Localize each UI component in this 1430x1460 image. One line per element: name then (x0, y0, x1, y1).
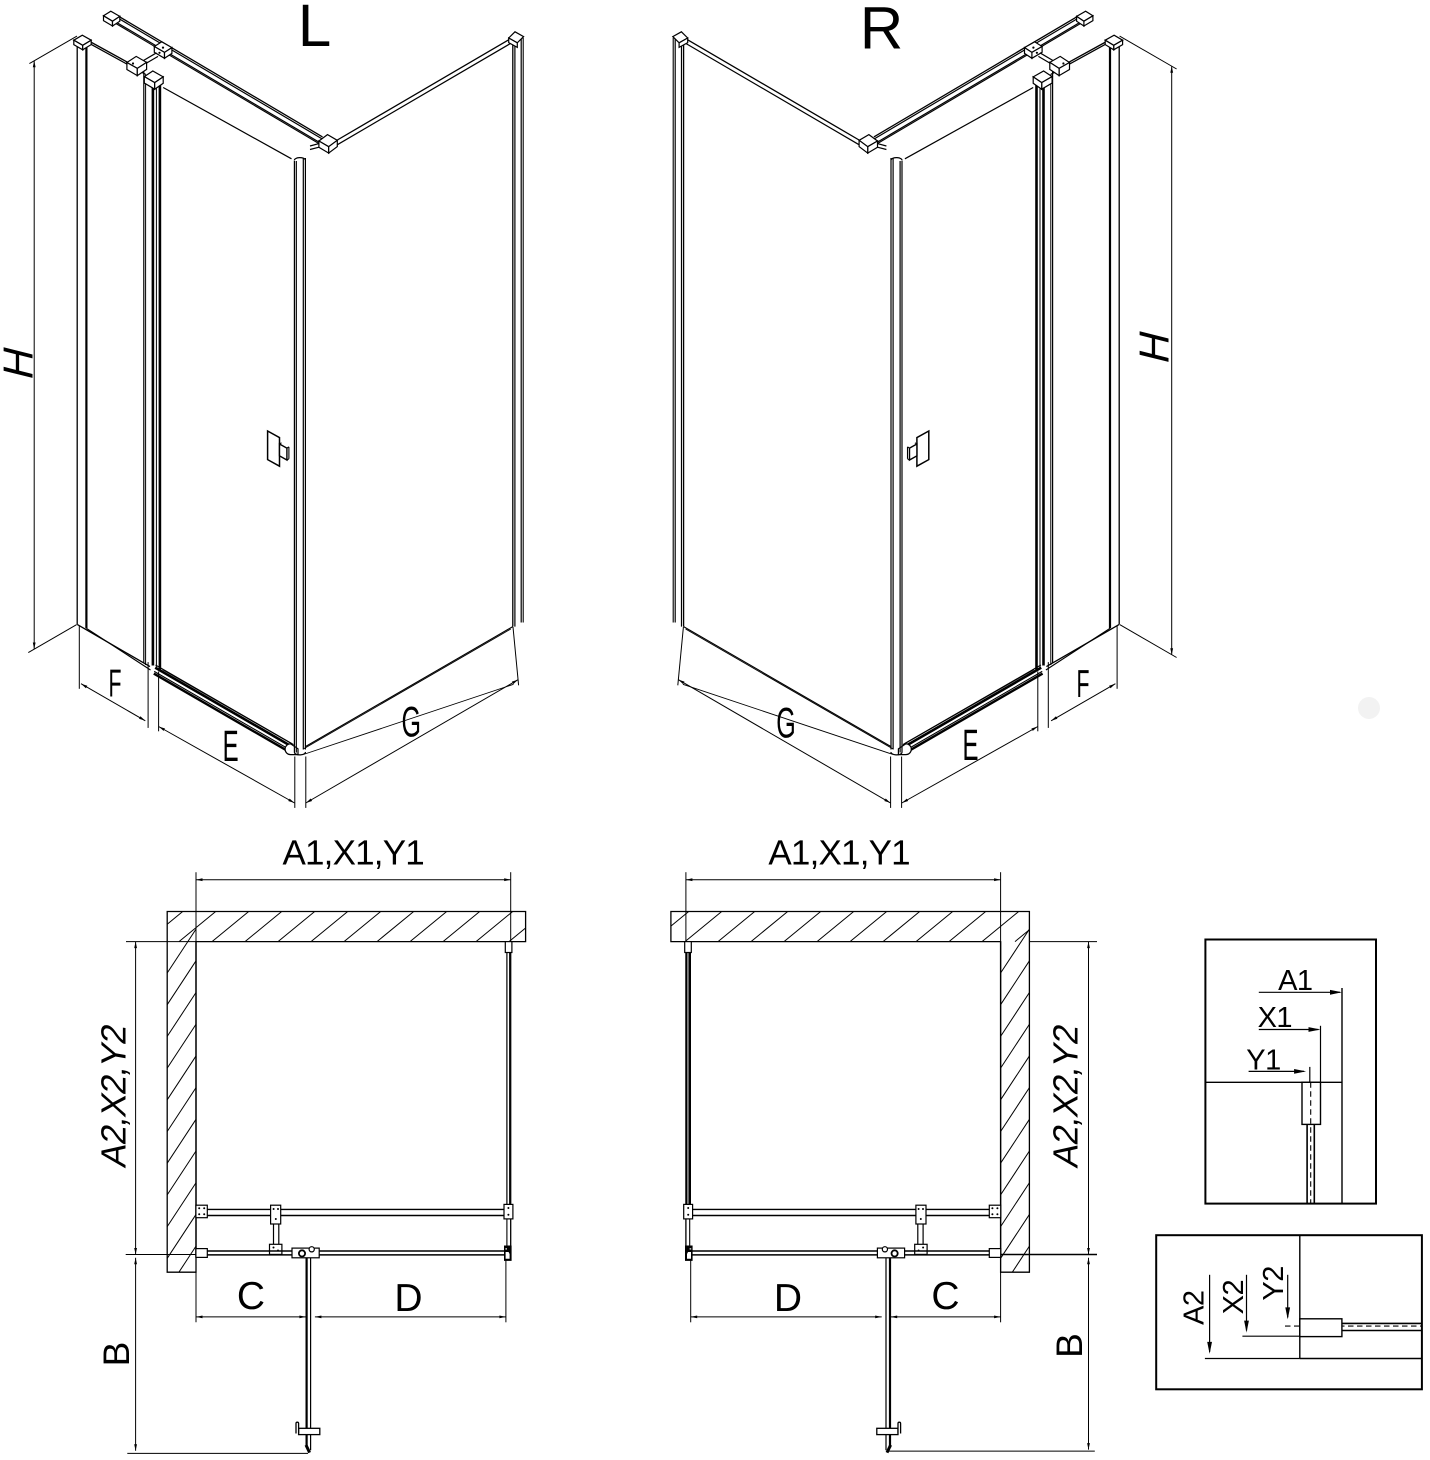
svg-text:Y1: Y1 (1246, 1045, 1280, 1077)
svg-text:A1,X1,Y1: A1,X1,Y1 (768, 834, 909, 873)
svg-text:G: G (402, 698, 422, 746)
svg-text:B: B (1049, 1333, 1090, 1358)
svg-text:A1,X1,Y1: A1,X1,Y1 (282, 834, 423, 873)
svg-text:C: C (237, 1275, 265, 1318)
svg-text:A1: A1 (1278, 965, 1312, 997)
svg-text:X1: X1 (1258, 1002, 1292, 1034)
svg-text:Y2: Y2 (1258, 1266, 1290, 1300)
svg-text:B: B (96, 1342, 137, 1367)
svg-text:A2,X2,Y2: A2,X2,Y2 (1047, 1022, 1086, 1170)
svg-text:C: C (931, 1275, 959, 1318)
svg-text:G: G (776, 700, 796, 748)
svg-text:D: D (774, 1277, 802, 1320)
svg-text:F: F (109, 663, 122, 706)
svg-text:A2: A2 (1178, 1290, 1210, 1324)
svg-text:X2: X2 (1218, 1280, 1250, 1314)
svg-text:L: L (298, 0, 331, 59)
svg-text:E: E (963, 721, 979, 770)
svg-text:E: E (223, 722, 239, 771)
svg-text:D: D (394, 1277, 422, 1320)
svg-text:R: R (860, 0, 903, 62)
svg-text:A2,X2,Y2: A2,X2,Y2 (95, 1022, 134, 1170)
svg-text:F: F (1077, 663, 1090, 706)
